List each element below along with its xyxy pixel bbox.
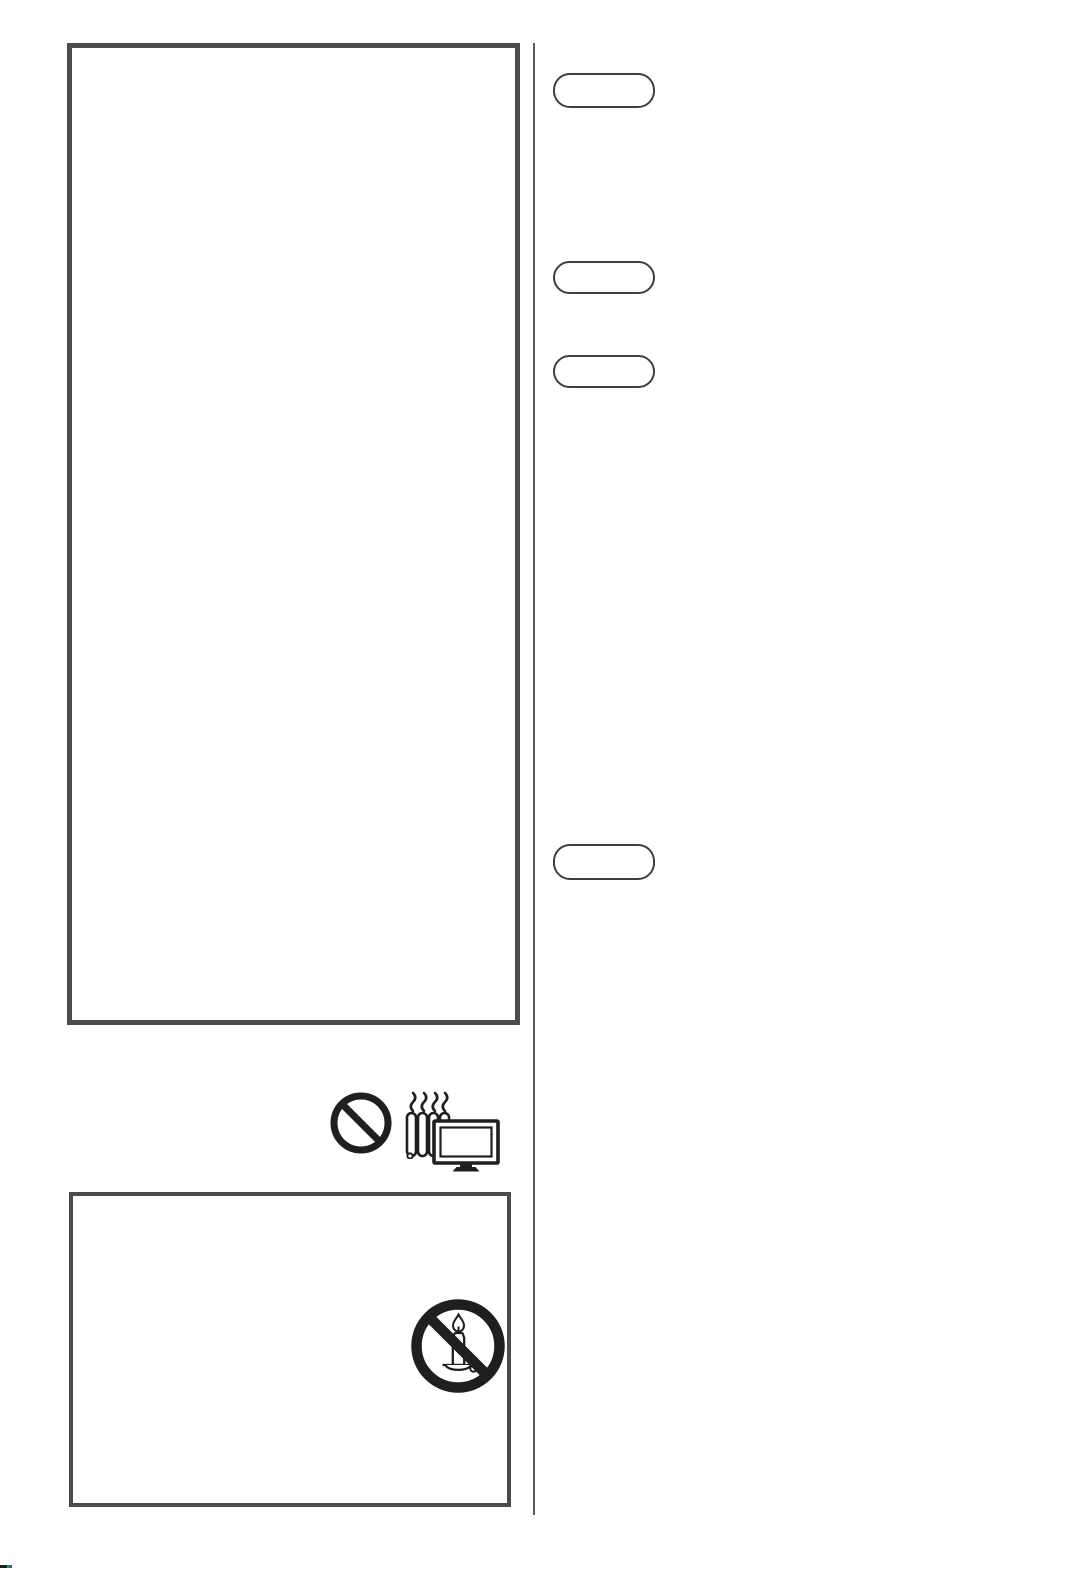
column-divider xyxy=(533,43,535,1515)
button-pill-1 xyxy=(553,73,655,108)
no-open-flame-icon xyxy=(411,1299,505,1393)
scan-artifact-blue xyxy=(9,1565,12,1568)
warning-box-top xyxy=(67,43,520,1025)
button-pill-4 xyxy=(553,844,655,880)
scan-artifact xyxy=(0,1565,12,1568)
button-pill-3 xyxy=(553,355,655,388)
scan-artifact-black xyxy=(0,1565,7,1568)
manual-page xyxy=(0,0,1070,1570)
prohibition-icon xyxy=(330,1092,392,1154)
button-pill-2 xyxy=(553,261,655,294)
tv-icon xyxy=(432,1119,500,1173)
